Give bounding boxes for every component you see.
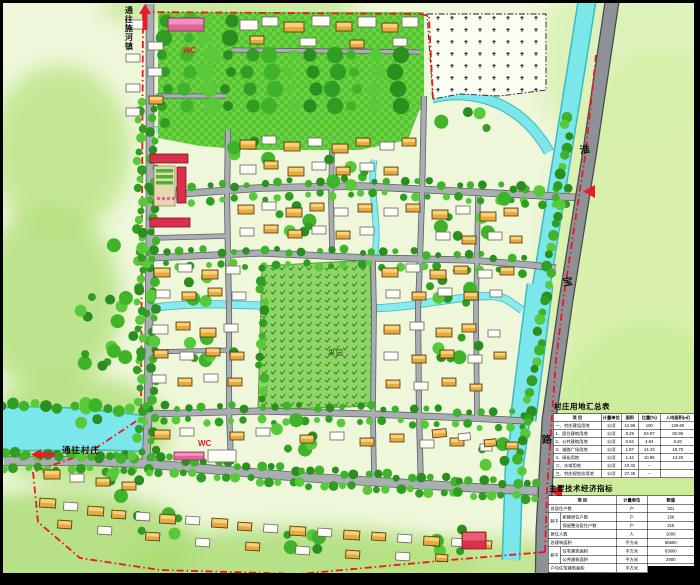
table-cell: 27.36: [621, 470, 638, 478]
house-roof: [413, 293, 425, 296]
house-roof: [337, 232, 349, 235]
irrigation-channel: [432, 95, 549, 152]
house-roof: [241, 141, 255, 145]
house: [195, 538, 210, 547]
table-cell: 户均住宅建筑面积: [548, 564, 616, 573]
tree: [184, 33, 194, 43]
tree: [358, 260, 367, 269]
house: [300, 435, 314, 443]
tree: [420, 420, 429, 429]
tree: [138, 197, 148, 207]
house: [350, 40, 364, 48]
tree: [163, 260, 169, 266]
house-roof: [471, 385, 481, 388]
tree: [555, 199, 566, 210]
tree: [255, 362, 262, 369]
tree: [185, 404, 192, 411]
village-road: [331, 150, 332, 253]
tree: [435, 404, 442, 411]
tree: [285, 249, 292, 256]
table-cell: 户: [616, 504, 647, 513]
sheet-border-corner: [648, 566, 700, 585]
tree: [136, 242, 148, 254]
table-cell: 82.90: [660, 430, 695, 438]
house-roof: [387, 381, 399, 384]
school-building: [150, 218, 190, 227]
tree: [152, 237, 160, 245]
tree: [383, 178, 390, 185]
house: [284, 142, 300, 151]
house: [384, 352, 398, 360]
house: [312, 226, 326, 234]
tree: [426, 177, 433, 184]
house: [180, 428, 194, 436]
house-roof: [155, 351, 167, 354]
tree: [366, 82, 379, 95]
house: [384, 325, 400, 334]
tree: [347, 481, 355, 489]
tree: [296, 402, 302, 408]
table-cell: 平方米: [616, 547, 647, 556]
tree: [260, 373, 270, 383]
tree: [285, 261, 291, 267]
road-name-char-3: 路: [542, 436, 553, 447]
tree: [283, 67, 293, 77]
tree: [512, 454, 523, 465]
table-cell: 公共建筑面积: [560, 555, 616, 564]
tree: [538, 200, 547, 209]
tree: [262, 180, 269, 187]
house-roof: [241, 21, 257, 25]
tree: [379, 247, 388, 256]
table-cell: 保留整治居住户数: [560, 521, 616, 530]
tree: [415, 489, 423, 497]
house-roof: [361, 228, 373, 231]
tree: [230, 473, 240, 483]
tree: [264, 478, 274, 488]
house: [310, 203, 324, 211]
house: [488, 232, 502, 240]
tree: [261, 98, 277, 114]
tree: [289, 413, 303, 427]
house-roof: [385, 353, 397, 356]
tree: [257, 462, 267, 472]
table-cell: 100: [638, 422, 660, 430]
tree: [239, 416, 246, 423]
tree: [10, 447, 21, 458]
tree: [387, 64, 403, 80]
tree: [264, 64, 280, 80]
house: [442, 378, 456, 386]
table-cell: 0.62: [621, 438, 638, 446]
house: [211, 518, 228, 528]
house: [204, 374, 218, 382]
column-header: 数值: [647, 496, 694, 505]
tree: [259, 396, 266, 403]
house-roof: [157, 291, 169, 294]
tree: [453, 487, 463, 497]
house: [390, 434, 404, 442]
tree: [548, 230, 559, 241]
house-roof: [313, 227, 325, 230]
house-roof: [491, 291, 501, 294]
table-cell: 1000: [647, 530, 694, 539]
tree: [259, 387, 267, 395]
house-roof: [225, 325, 237, 328]
house-roof: [407, 205, 419, 208]
tree: [222, 473, 230, 481]
tree: [244, 182, 250, 188]
tree: [478, 251, 484, 257]
tree: [105, 295, 115, 305]
house: [256, 428, 270, 436]
table-cell: 公顷: [601, 454, 621, 462]
house: [63, 502, 78, 511]
tree: [185, 416, 191, 422]
tree: [78, 356, 92, 370]
tree: [230, 183, 239, 192]
tree: [200, 295, 212, 307]
tree: [326, 404, 335, 413]
house: [438, 288, 452, 296]
public-building: [168, 18, 204, 31]
tree: [348, 192, 354, 198]
table-cell: 1.87: [621, 446, 638, 454]
tree: [435, 252, 441, 258]
tree: [382, 469, 392, 479]
tree: [390, 81, 406, 97]
house: [506, 442, 518, 449]
house: [154, 430, 170, 439]
house: [510, 236, 522, 243]
tree: [423, 406, 429, 412]
house: [393, 38, 407, 46]
house: [330, 432, 344, 440]
wc-label-north: WC: [183, 47, 196, 55]
house-roof: [301, 39, 315, 42]
house: [148, 68, 162, 76]
tree: [464, 476, 472, 484]
house: [332, 144, 348, 153]
house: [180, 352, 194, 360]
table-cell: 4、绿化用地: [553, 454, 601, 462]
tree: [86, 464, 93, 471]
tree: [256, 339, 266, 349]
house: [406, 264, 420, 272]
tree: [107, 238, 121, 252]
tree: [242, 247, 249, 254]
tree: [31, 399, 40, 408]
house-roof: [403, 18, 417, 22]
house-roof: [383, 269, 397, 273]
house-roof: [501, 268, 513, 271]
tree: [134, 299, 141, 306]
tree: [309, 82, 322, 95]
tree: [201, 81, 217, 97]
tree: [142, 419, 148, 425]
house-roof: [413, 356, 425, 359]
house: [156, 290, 170, 298]
tree: [148, 335, 160, 347]
tree: [392, 248, 398, 254]
house: [126, 108, 140, 116]
tree: [134, 285, 144, 295]
table-cell: 户: [616, 521, 647, 530]
house: [208, 288, 222, 296]
tree: [443, 193, 450, 200]
tree: [497, 492, 504, 499]
house-roof: [489, 331, 499, 334]
tree: [425, 194, 431, 200]
tree: [340, 471, 348, 479]
tree: [466, 409, 472, 415]
tree: [534, 345, 545, 356]
house: [436, 554, 448, 562]
tree: [371, 179, 377, 185]
house-roof: [351, 41, 363, 44]
house: [382, 23, 398, 32]
house: [87, 506, 104, 516]
tree: [138, 527, 146, 535]
house: [334, 208, 348, 216]
column-header: 项 目: [553, 414, 601, 422]
tree: [146, 363, 156, 373]
tree: [282, 418, 289, 425]
house-roof: [439, 289, 451, 292]
tree: [480, 459, 492, 471]
tree: [208, 182, 214, 188]
tree: [240, 405, 249, 414]
green-strip: [156, 169, 173, 173]
tree: [128, 331, 138, 341]
house-roof: [285, 143, 299, 147]
tree: [137, 374, 147, 384]
tree: [206, 262, 212, 268]
tree: [136, 149, 143, 156]
house-roof: [231, 433, 243, 436]
tree: [454, 192, 463, 201]
tree: [324, 81, 340, 97]
table-cell: 公顷: [601, 446, 621, 454]
tree: [156, 452, 166, 462]
tree: [401, 177, 410, 186]
house: [336, 167, 350, 175]
tree: [339, 404, 345, 410]
tree: [228, 418, 234, 424]
tree: [532, 479, 540, 487]
tree: [524, 480, 531, 487]
table-cell: --: [638, 470, 660, 478]
column-header: 计量单位: [601, 414, 621, 422]
tree: [219, 180, 226, 187]
table-row: 总居住户数户321: [548, 504, 694, 513]
column-header: 比重(%): [638, 414, 660, 422]
tree: [135, 216, 143, 224]
tree: [357, 189, 364, 196]
tree: [92, 414, 102, 424]
tree: [88, 398, 102, 412]
house-roof: [227, 267, 239, 270]
tree: [132, 433, 142, 443]
tree: [136, 133, 146, 143]
tree: [458, 334, 466, 342]
tree: [483, 124, 491, 132]
village-road: [152, 236, 228, 238]
tree: [135, 425, 143, 433]
house-roof: [403, 139, 415, 142]
table-cell: 总居住户数: [548, 504, 616, 513]
house-roof: [415, 383, 427, 386]
public-building: [174, 452, 204, 460]
house-roof: [335, 209, 347, 212]
tree: [199, 245, 206, 252]
public-building-roof: [175, 453, 203, 456]
tree: [139, 334, 147, 342]
tree: [274, 194, 281, 201]
house-roof: [463, 237, 475, 240]
tree: [144, 183, 153, 192]
table-cell: 其中: [548, 547, 560, 564]
table-cell: 三、村庄规划总用地: [553, 470, 601, 478]
tree: [478, 492, 486, 500]
tree: [75, 305, 87, 317]
village-road: [227, 130, 231, 464]
tree: [272, 261, 281, 270]
tree: [564, 184, 573, 193]
public-building-roof: [463, 533, 485, 541]
house-roof: [149, 69, 161, 72]
house: [386, 380, 400, 388]
house-roof: [385, 326, 399, 330]
tree: [474, 341, 484, 351]
house: [440, 350, 454, 358]
house-roof: [263, 137, 275, 140]
house-roof: [359, 205, 371, 208]
tree: [303, 48, 316, 61]
house: [148, 42, 163, 50]
tree: [137, 385, 144, 392]
table-row: 2、公共建筑用地公顷0.624.846.20: [553, 438, 695, 446]
tree: [463, 419, 472, 428]
table-row: 总建筑面积平方米66500: [548, 538, 694, 547]
house-roof: [465, 293, 477, 296]
house-roof: [383, 24, 397, 28]
house: [295, 546, 310, 555]
table-cell: 居住人数: [548, 530, 616, 539]
tree: [295, 477, 305, 487]
tree: [498, 480, 506, 488]
tree: [434, 421, 440, 427]
tree: [142, 402, 149, 409]
house: [200, 328, 216, 337]
house-roof: [457, 207, 469, 210]
table-cell: 3、道路广场用地: [553, 446, 601, 454]
house-roof: [231, 353, 243, 356]
road-name-char-2: 宝: [562, 277, 574, 289]
tree: [223, 50, 233, 60]
school-building: [177, 167, 186, 203]
tree: [150, 387, 158, 395]
house-roof: [241, 229, 253, 232]
tree: [555, 169, 566, 180]
tree: [306, 467, 314, 475]
tree: [337, 419, 346, 428]
house-roof: [285, 23, 303, 27]
tree: [374, 470, 382, 478]
tree: [303, 99, 316, 112]
tree: [116, 453, 127, 464]
land-use-summary-panel: 村庄用地汇总表 项 目计量单位面积比重(%)人均面积(㎡)一、村庄建设用地公顷1…: [553, 401, 695, 478]
tree: [457, 182, 463, 188]
tree: [312, 544, 322, 554]
house: [356, 138, 370, 146]
tree: [70, 402, 79, 411]
house: [250, 36, 264, 44]
tree: [222, 30, 238, 46]
tree: [372, 65, 385, 78]
house-roof: [123, 483, 135, 486]
table-cell: 14.20: [660, 454, 695, 462]
house-roof: [153, 326, 167, 330]
to-village-arrow-icon: [30, 448, 56, 461]
tree: [316, 178, 325, 187]
tree: [508, 254, 517, 263]
tree: [256, 478, 264, 486]
house: [152, 375, 166, 383]
tree: [547, 268, 556, 277]
tree: [466, 198, 472, 204]
table-cell: 户: [616, 513, 647, 522]
tree: [152, 138, 159, 145]
tree: [203, 419, 210, 426]
tree: [303, 259, 310, 266]
tree: [7, 398, 19, 410]
tree: [215, 418, 224, 427]
tree: [367, 260, 373, 266]
tree: [137, 275, 145, 283]
house: [345, 550, 360, 559]
house-roof: [257, 429, 269, 432]
tree: [198, 31, 211, 44]
house: [384, 208, 398, 216]
tree: [151, 414, 159, 422]
tree: [25, 464, 32, 471]
tree: [40, 400, 52, 412]
house: [135, 512, 150, 521]
tree: [107, 344, 121, 358]
tree: [470, 493, 477, 500]
tree: [138, 228, 148, 238]
tree: [75, 417, 87, 429]
tree: [423, 488, 433, 498]
tree: [260, 305, 270, 315]
house: [154, 350, 168, 358]
tree: [509, 408, 515, 414]
column-header: 面积: [621, 414, 638, 422]
house: [228, 378, 242, 386]
tree: [249, 192, 258, 201]
tree: [258, 415, 267, 424]
tree: [145, 290, 157, 302]
house: [264, 161, 278, 169]
tree: [139, 449, 146, 456]
house: [423, 536, 440, 546]
house-roof: [209, 289, 221, 292]
house-roof: [361, 439, 373, 442]
table-header-row: 项 目计量单位数值: [548, 496, 694, 505]
wc-label-south: WC: [198, 440, 211, 448]
tree: [339, 261, 346, 268]
